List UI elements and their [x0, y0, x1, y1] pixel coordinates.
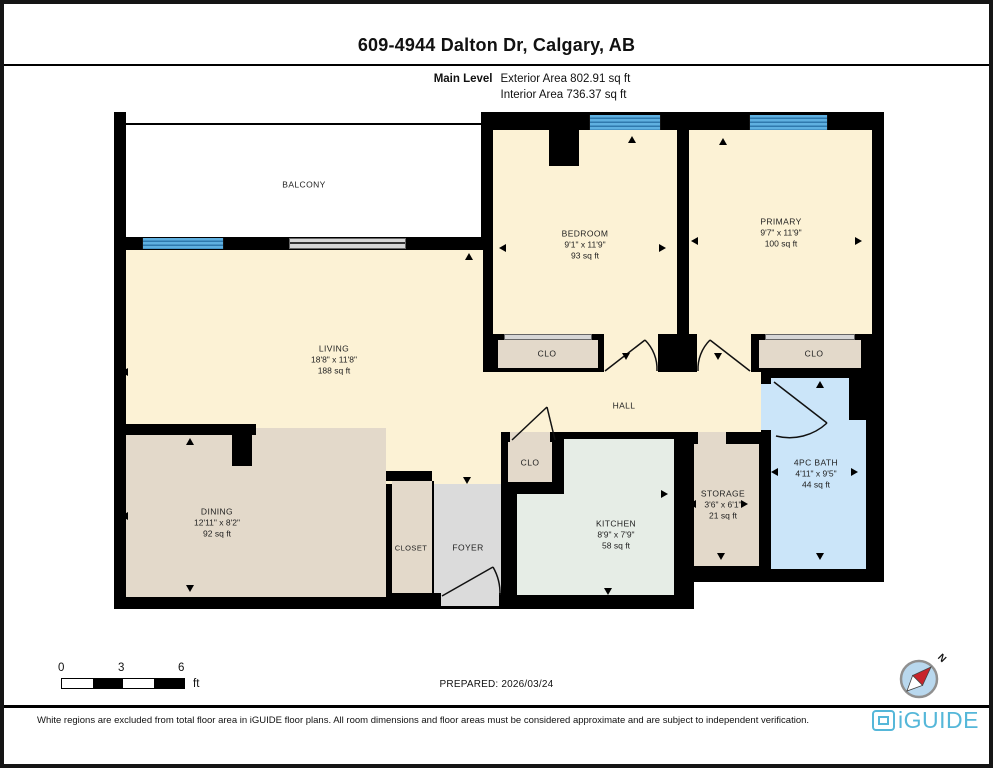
measure-arrow — [604, 588, 612, 595]
primary-door-gap — [697, 334, 751, 374]
scale-tick-0: 0 — [58, 662, 64, 674]
measure-arrow — [622, 353, 630, 360]
measure-arrow — [816, 381, 824, 388]
window-living — [142, 238, 224, 249]
room-label-living: LIVING18'8" x 11'8"188 sq ft — [311, 344, 357, 377]
disclaimer-text: White regions are excluded from total fl… — [37, 715, 839, 726]
iguide-logo-icon — [872, 710, 895, 731]
compass-icon: N — [895, 652, 955, 704]
scale-tick-3: 3 — [118, 662, 124, 674]
room-label-bath: 4PC BATH4'11" x 9'5"44 sq ft — [794, 458, 838, 491]
measure-arrow — [851, 468, 858, 476]
level-label: Main Level — [4, 71, 501, 103]
measure-arrow — [717, 553, 725, 560]
page-title: 609-4944 Dalton Dr, Calgary, AB — [4, 35, 989, 56]
measure-arrow — [855, 237, 862, 245]
wall — [386, 471, 432, 481]
room-fill-dining — [126, 428, 386, 597]
wall — [232, 424, 252, 466]
measure-arrow — [661, 490, 668, 498]
room-fill-kitchen-upper — [564, 439, 674, 494]
iguide-logo-text: iGUIDE — [898, 707, 979, 734]
measure-arrow — [659, 244, 666, 252]
room-label-clo-primary: CLO — [805, 349, 824, 360]
measure-arrow — [689, 500, 696, 508]
room-label-storage: STORAGE3'6" x 6'1"21 sq ft — [701, 489, 745, 522]
window-primary — [749, 115, 828, 130]
measure-arrow — [816, 553, 824, 560]
room-fill-bath — [771, 420, 866, 569]
room-fill-closet — [392, 481, 432, 593]
sliding-door-balcony — [289, 238, 406, 249]
scale-tick-6: 6 — [178, 662, 184, 674]
measure-arrow — [499, 244, 506, 252]
measure-arrow — [186, 438, 194, 445]
room-label-primary: PRIMARY9'7" x 11'9"100 sq ft — [760, 217, 801, 250]
room-label-balcony: BALCONY — [282, 180, 325, 191]
measure-arrow — [463, 477, 471, 484]
area-values: Exterior Area 802.91 sq ft Interior Area… — [501, 71, 990, 103]
measure-arrow — [628, 136, 636, 143]
room-label-bedroom: BEDROOM9'1" x 11'9"93 sq ft — [562, 229, 609, 262]
interior-area: Interior Area 736.37 sq ft — [501, 87, 990, 103]
measure-arrow — [186, 585, 194, 592]
room-label-dining: DINING12'11" x 8'2"92 sq ft — [194, 507, 240, 540]
room-label-kitchen: KITCHEN8'9" x 7'9"58 sq ft — [596, 519, 636, 552]
prepared-date: PREPARED: 2026/03/24 — [4, 679, 989, 690]
wall — [549, 130, 579, 166]
room-label-clo-bedroom: CLO — [538, 349, 557, 360]
measure-arrow — [121, 512, 128, 520]
room-label-closet: CLOSET — [395, 543, 427, 554]
room-label-clo-hall: CLO — [521, 458, 540, 469]
footer-divider — [4, 705, 989, 708]
measure-arrow — [507, 492, 514, 500]
measure-arrow — [714, 353, 722, 360]
wall — [114, 112, 126, 249]
header-divider — [4, 64, 989, 66]
room-fill-foyer — [434, 484, 501, 593]
iguide-logo: iGUIDE — [872, 707, 979, 734]
measure-arrow — [121, 368, 128, 376]
level-area-row: Main Level Exterior Area 802.91 sq ft In… — [4, 71, 989, 103]
room-label-hall: HALL — [613, 401, 636, 412]
window-bedroom — [589, 115, 661, 130]
floor-plan-page: 609-4944 Dalton Dr, Calgary, AB Main Lev… — [0, 0, 993, 768]
room-fill-bath-upper — [771, 378, 849, 420]
room-label-foyer: FOYER — [452, 543, 483, 554]
bedroom-door-gap — [604, 334, 658, 374]
measure-arrow — [691, 237, 698, 245]
bath-door-gap — [761, 384, 771, 430]
measure-arrow — [719, 138, 727, 145]
room-fill-living — [126, 250, 483, 428]
measure-arrow — [465, 253, 473, 260]
entry-door-gap — [441, 593, 499, 606]
exterior-area: Exterior Area 802.91 sq ft — [501, 71, 990, 87]
measure-arrow — [771, 468, 778, 476]
